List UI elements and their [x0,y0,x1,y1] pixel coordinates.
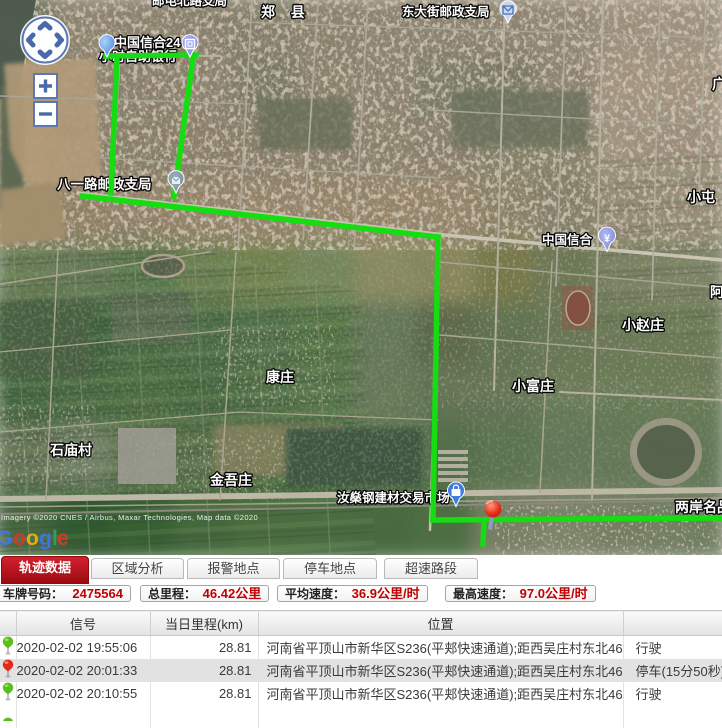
svg-text:Imagery ©2020 CNES / Airbus, M: Imagery ©2020 CNES / Airbus, Maxar Techn… [1,513,258,522]
svg-text:石庙村: 石庙村 [49,442,92,458]
svg-text:小屯: 小屯 [687,189,715,205]
svg-text:郑 县: 郑 县 [261,4,311,20]
svg-text:八一路邮政支局: 八一路邮政支局 [56,176,152,192]
svg-text:中国信合: 中国信合 [542,232,593,247]
svg-text:金吾庄: 金吾庄 [209,472,252,488]
svg-text:广: 广 [712,76,722,92]
svg-text:¥: ¥ [604,233,611,245]
svg-text:G: G [0,527,12,550]
svg-text:两岸名品: 两岸名品 [675,499,722,515]
svg-text:小赵庄: 小赵庄 [622,317,664,333]
svg-text:小富庄: 小富庄 [512,378,554,394]
svg-text:中国信合24: 中国信合24 [114,35,181,50]
svg-text:o: o [13,527,26,550]
svg-text:邮电北路支局: 邮电北路支局 [152,0,227,8]
svg-text:东大街邮政支局: 东大街邮政支局 [402,4,490,19]
svg-text:e: e [57,527,69,550]
svg-text:阿: 阿 [710,284,722,300]
svg-text:g: g [39,527,52,550]
svg-text:康庄: 康庄 [266,369,294,385]
svg-text:o: o [26,527,39,550]
